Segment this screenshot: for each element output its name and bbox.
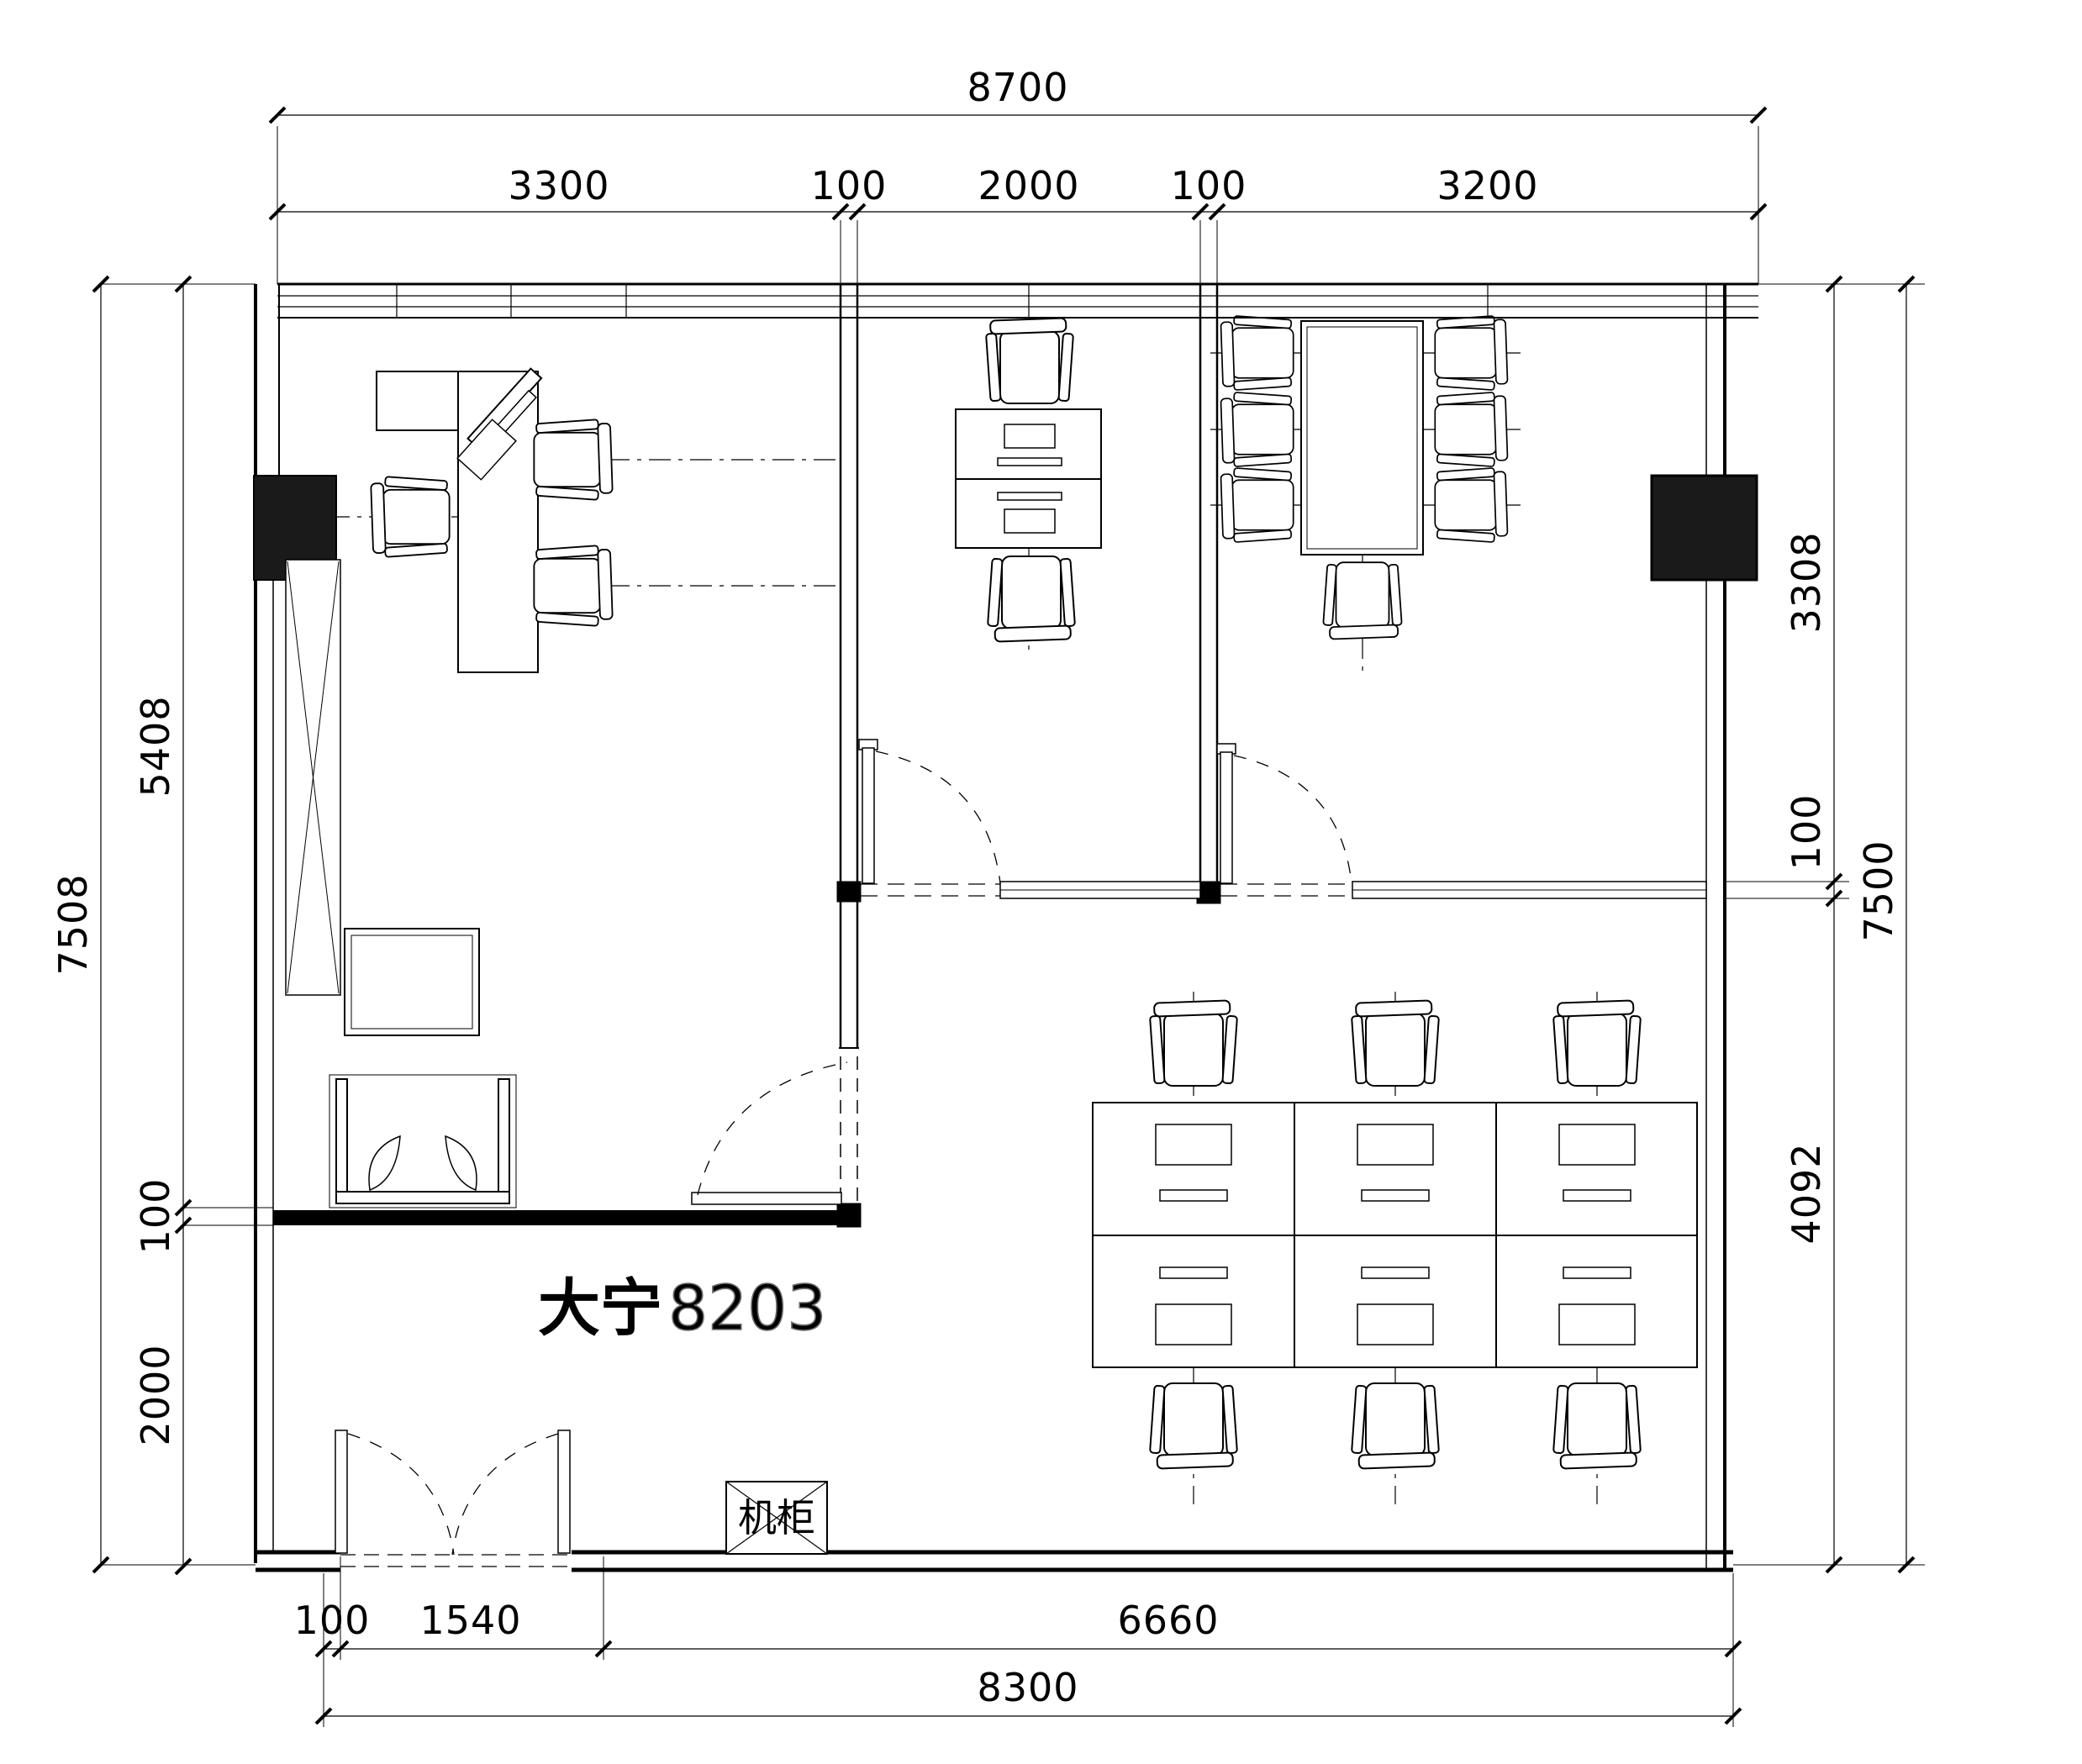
meeting-chair xyxy=(1220,468,1293,542)
meeting-chair xyxy=(1435,392,1507,466)
dim-bottom-seg-1: 100 xyxy=(294,1598,371,1643)
dim-top-seg-5: 3200 xyxy=(1436,163,1538,208)
dim-right-overall: 7500 xyxy=(1856,840,1901,941)
entrance-double-door xyxy=(335,1430,570,1555)
monitor xyxy=(1004,424,1055,448)
door-manager-office xyxy=(692,1062,847,1204)
dim-top-overall: 8700 xyxy=(967,65,1068,110)
entrance-door-right xyxy=(558,1430,570,1553)
dim-left-overall: 7508 xyxy=(50,873,96,975)
meeting-chair-head xyxy=(1323,562,1402,639)
chair xyxy=(986,318,1073,403)
manager-front-wall xyxy=(273,1210,853,1225)
meeting-chair xyxy=(1435,316,1507,390)
dim-bottom-seg-2: 1540 xyxy=(419,1598,521,1643)
dim-top-seg-1: 3300 xyxy=(508,163,609,208)
room-name-bold: 大宁 xyxy=(538,1272,662,1345)
dim-bottom-overall: 8300 xyxy=(977,1665,1078,1710)
dim-left-seg-1: 5408 xyxy=(133,695,178,797)
keyboard xyxy=(998,492,1062,500)
column-right xyxy=(1652,476,1757,580)
office-chair xyxy=(1553,1000,1641,1086)
guest-chair-1 xyxy=(534,419,612,500)
coffee-table xyxy=(345,929,479,1035)
dim-left-seg-2: 100 xyxy=(133,1178,178,1255)
shaft-x-box xyxy=(286,560,340,995)
office-chair xyxy=(1352,1383,1439,1469)
room-manager-office xyxy=(329,369,613,1208)
dim-top-seg-4: 100 xyxy=(1171,163,1247,208)
dim-right-seg-3: 4092 xyxy=(1784,1142,1829,1244)
office-chair xyxy=(1150,1383,1237,1469)
keyboard xyxy=(998,458,1062,466)
window-band xyxy=(277,284,1758,318)
partition-2 xyxy=(1197,318,1220,903)
door-meeting-room xyxy=(1217,744,1352,883)
room-name-label: 大宁 8203 xyxy=(538,1272,826,1345)
floor-plan-page: 机柜 大宁 8203 xyxy=(0,0,2082,1764)
desk-chair xyxy=(371,477,449,557)
dim-top-seg-2: 100 xyxy=(811,163,888,208)
monitor xyxy=(1004,509,1055,533)
dim-left-seg-3: 2000 xyxy=(133,1344,178,1445)
open-office-area xyxy=(1093,1000,1697,1468)
meeting-table xyxy=(1301,321,1423,555)
guest-chair-2 xyxy=(534,545,612,626)
floor-plan-svg: 机柜 大宁 8203 xyxy=(0,0,2082,1764)
cabinet-label: 机柜 xyxy=(738,1495,815,1540)
dim-top-seg-3: 2000 xyxy=(978,163,1079,208)
door-middle-room xyxy=(859,740,1000,883)
room-meeting-room xyxy=(1220,316,1507,640)
office-chair xyxy=(1553,1383,1641,1469)
room-middle-office xyxy=(956,318,1101,641)
chair xyxy=(988,556,1075,642)
office-chair xyxy=(1352,1000,1439,1086)
meeting-chair xyxy=(1435,468,1507,542)
dim-right-seg-1: 3308 xyxy=(1784,531,1829,633)
dim-bottom-seg-3: 6660 xyxy=(1117,1598,1219,1643)
server-cabinet: 机柜 xyxy=(726,1482,827,1554)
partition-1 xyxy=(837,318,861,1227)
entrance-door-left xyxy=(335,1430,347,1553)
bottom-wall xyxy=(256,1552,1733,1570)
sofa xyxy=(329,1075,516,1208)
front-partition-walls xyxy=(861,882,1706,898)
office-chair xyxy=(1150,1000,1237,1086)
meeting-chair xyxy=(1220,316,1293,390)
dim-right-seg-2: 100 xyxy=(1784,794,1829,871)
meeting-chair xyxy=(1220,392,1293,466)
room-name-number: 8203 xyxy=(668,1272,826,1345)
